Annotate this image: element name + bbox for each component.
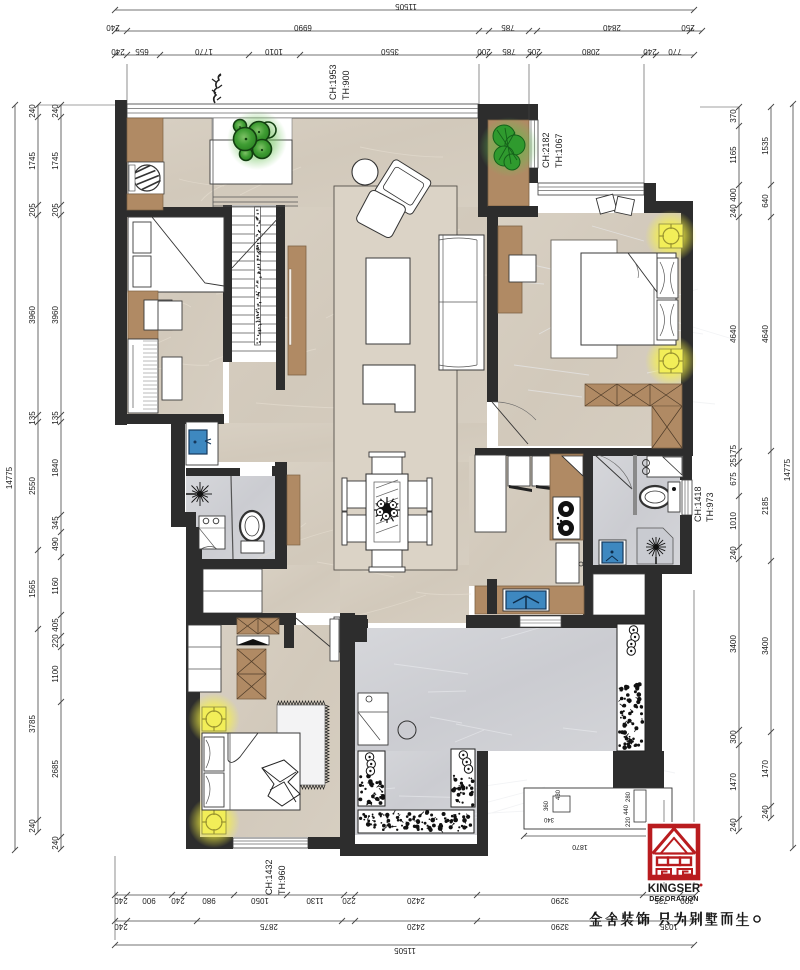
svg-text:1870: 1870 (572, 843, 588, 850)
svg-text:240: 240 (643, 47, 657, 56)
svg-text:1165: 1165 (729, 146, 738, 164)
svg-text:135: 135 (28, 411, 37, 425)
svg-text:11505: 11505 (394, 946, 416, 955)
svg-text:CH:1432: CH:1432 (264, 859, 274, 895)
svg-text:11505: 11505 (395, 2, 417, 11)
svg-text:1050: 1050 (251, 896, 269, 905)
svg-text:360: 360 (544, 800, 550, 811)
svg-text:345: 345 (51, 516, 60, 530)
svg-text:DECORATION: DECORATION (649, 896, 699, 903)
svg-text:3400: 3400 (729, 635, 738, 653)
svg-text:240: 240 (729, 546, 738, 560)
svg-text:2420: 2420 (407, 922, 425, 931)
svg-text:240: 240 (114, 922, 128, 931)
svg-text:3550: 3550 (381, 47, 399, 56)
svg-text:25175: 25175 (729, 444, 738, 467)
svg-text:770: 770 (668, 47, 682, 56)
svg-text:TH:900: TH:900 (341, 70, 351, 100)
svg-text:CH:1418: CH:1418 (693, 486, 703, 522)
svg-text:1010: 1010 (729, 512, 738, 530)
svg-text:900: 900 (142, 896, 156, 905)
svg-text:240: 240 (106, 23, 120, 32)
svg-text:2840: 2840 (603, 23, 621, 32)
svg-text:14775: 14775 (5, 466, 14, 489)
svg-text:2420: 2420 (407, 896, 425, 905)
svg-text:CH:2182: CH:2182 (541, 132, 551, 168)
svg-text:300: 300 (729, 730, 738, 744)
svg-text:TH:960: TH:960 (277, 865, 287, 895)
svg-text:3290: 3290 (551, 896, 569, 905)
svg-text:3400: 3400 (761, 637, 770, 655)
svg-text:980: 980 (202, 896, 216, 905)
svg-text:1565: 1565 (28, 580, 37, 598)
svg-text:200: 200 (477, 47, 491, 56)
svg-text:1535: 1535 (761, 137, 770, 155)
svg-text:220: 220 (626, 816, 632, 827)
svg-text:240: 240 (111, 47, 125, 56)
svg-text:240: 240 (114, 896, 128, 905)
svg-text:205: 205 (527, 47, 541, 56)
svg-text:240: 240 (51, 104, 60, 118)
svg-text:1160: 1160 (51, 577, 60, 595)
svg-text:3290: 3290 (551, 922, 569, 931)
svg-text:240: 240 (171, 896, 185, 905)
svg-text:405: 405 (51, 618, 60, 632)
svg-text:2185: 2185 (761, 497, 770, 515)
svg-text:400: 400 (729, 188, 738, 202)
svg-text:675: 675 (729, 472, 738, 486)
svg-text:3785: 3785 (28, 715, 37, 733)
svg-text:3960: 3960 (28, 306, 37, 324)
svg-text:430: 430 (556, 789, 562, 800)
svg-text:1745: 1745 (28, 152, 37, 170)
svg-text:240: 240 (729, 818, 738, 832)
svg-text:240: 240 (729, 204, 738, 218)
svg-text:240: 240 (761, 805, 770, 819)
svg-text:3960: 3960 (51, 306, 60, 324)
svg-text:205: 205 (28, 203, 37, 217)
svg-text:240: 240 (51, 836, 60, 850)
svg-text:655: 655 (135, 47, 149, 56)
svg-text:785: 785 (502, 47, 516, 56)
svg-text:2550: 2550 (28, 477, 37, 495)
svg-text:6990: 6990 (294, 23, 312, 32)
svg-text:135: 135 (51, 411, 60, 425)
svg-text:280: 280 (626, 791, 632, 802)
svg-text:220: 220 (342, 896, 356, 905)
svg-text:TH:1067: TH:1067 (554, 133, 564, 168)
svg-text:205: 205 (51, 203, 60, 217)
svg-text:490: 490 (51, 537, 60, 551)
svg-text:220: 220 (51, 634, 60, 648)
svg-text:250: 250 (681, 23, 695, 32)
svg-text:785: 785 (501, 23, 515, 32)
svg-text:1840: 1840 (51, 459, 60, 477)
svg-text:640: 640 (761, 194, 770, 208)
svg-text:1010: 1010 (265, 47, 283, 56)
svg-text:1770: 1770 (195, 47, 213, 56)
svg-text:2875: 2875 (260, 922, 278, 931)
svg-text:1130: 1130 (306, 896, 324, 905)
svg-text:240: 240 (28, 104, 37, 118)
svg-text:1470: 1470 (761, 760, 770, 778)
svg-text:2080: 2080 (582, 47, 600, 56)
svg-text:KINGSER: KINGSER (648, 883, 701, 895)
svg-text:4640: 4640 (729, 325, 738, 343)
svg-text:440: 440 (624, 804, 630, 815)
svg-text:4640: 4640 (761, 325, 770, 343)
svg-text:1745: 1745 (51, 152, 60, 170)
svg-text:TH:973: TH:973 (705, 492, 715, 522)
svg-text:370: 370 (729, 109, 738, 123)
svg-text:14775: 14775 (783, 458, 792, 481)
svg-text:2685: 2685 (51, 760, 60, 778)
svg-text:1470: 1470 (729, 773, 738, 791)
svg-text:CH:1953: CH:1953 (328, 64, 338, 100)
svg-text:1100: 1100 (51, 665, 60, 683)
svg-text:340: 340 (543, 816, 554, 822)
svg-text:240: 240 (28, 819, 37, 833)
